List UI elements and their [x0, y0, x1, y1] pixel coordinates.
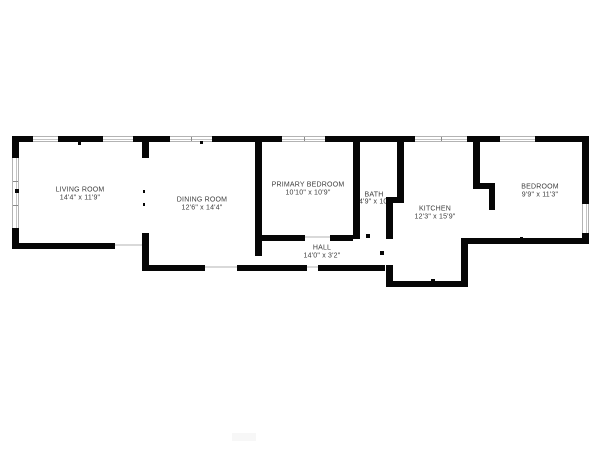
- door-stop-tick: [520, 237, 523, 240]
- room-name-hall: HALL: [313, 245, 331, 252]
- wall-segment: [397, 142, 404, 203]
- wall-segment: [237, 265, 307, 271]
- wall-segment: [318, 265, 385, 271]
- wall-segment: [489, 189, 495, 210]
- window-center-line: [33, 139, 58, 140]
- door-stop-tick: [143, 203, 145, 206]
- door-stop-tick: [366, 234, 370, 238]
- room-dimensions-living-room: 14'4" x 11'9": [60, 195, 100, 202]
- window-symbol: [33, 136, 58, 142]
- wall-segment: [582, 136, 589, 204]
- door-stop-tick: [15, 189, 19, 193]
- window-pane-divider: [441, 137, 442, 141]
- door-stop-tick: [143, 190, 145, 193]
- window-symbol: [170, 136, 212, 142]
- wall-segment: [467, 136, 500, 142]
- window-symbol: [12, 158, 19, 228]
- wall-segment: [330, 235, 353, 241]
- wall-segment: [461, 238, 468, 287]
- window-pane-divider: [13, 181, 18, 182]
- door-opening-threshold: [305, 236, 330, 238]
- wall-segment: [133, 136, 170, 142]
- room-dimensions-bedroom: 9'9" x 11'3": [522, 192, 558, 199]
- door-opening-threshold: [205, 266, 237, 268]
- room-dimensions-hall: 14'0" x 3'2": [304, 253, 341, 260]
- door-stop-tick: [538, 239, 541, 242]
- wall-segment: [255, 235, 305, 241]
- wall-segment: [473, 142, 480, 183]
- door-opening-threshold: [307, 266, 318, 268]
- wall-segment: [582, 233, 589, 244]
- door-stop-tick: [78, 141, 81, 145]
- floor-plan-screenshot: LIVING ROOM14'4" x 11'9"DINING ROOM12'6"…: [0, 0, 600, 449]
- wall-segment: [212, 136, 282, 142]
- door-opening-threshold: [115, 244, 143, 246]
- room-name-dining-room: DINING ROOM: [177, 197, 227, 204]
- door-stop-tick: [380, 251, 384, 255]
- wall-segment: [386, 281, 468, 287]
- room-name-primary-bedroom: PRIMARY BEDROOM: [272, 182, 345, 189]
- wall-segment: [142, 265, 205, 271]
- window-center-line: [586, 204, 587, 233]
- window-symbol: [415, 136, 467, 142]
- window-center-line: [16, 158, 17, 228]
- room-name-living-room: LIVING ROOM: [56, 187, 105, 194]
- wall-segment: [461, 238, 587, 244]
- watermark: [232, 433, 256, 441]
- floor-plan: LIVING ROOM14'4" x 11'9"DINING ROOM12'6"…: [0, 0, 600, 449]
- window-pane-divider: [304, 137, 305, 141]
- room-dimensions-kitchen: 12'3" x 15'9": [415, 214, 456, 221]
- wall-segment: [142, 142, 149, 158]
- wall-segment: [12, 243, 115, 249]
- window-center-line: [103, 139, 133, 140]
- window-center-line: [500, 139, 535, 140]
- wall-segment: [12, 136, 19, 158]
- window-symbol: [582, 204, 589, 233]
- window-pane-divider: [13, 205, 18, 206]
- room-dimensions-bath: 4'9" x 10': [359, 199, 389, 206]
- door-stop-tick: [200, 141, 203, 144]
- wall-segment: [386, 197, 393, 239]
- room-dimensions-primary-bedroom: 10'10" x 10'9": [285, 190, 330, 197]
- wall-segment: [535, 136, 589, 142]
- room-name-bedroom: BEDROOM: [521, 184, 559, 191]
- window-pane-divider: [191, 137, 192, 141]
- room-name-kitchen: KITCHEN: [419, 206, 451, 213]
- window-symbol: [103, 136, 133, 142]
- room-name-bath: BATH: [365, 192, 384, 199]
- room-dimensions-dining-room: 12'6" x 14'4": [182, 205, 223, 212]
- door-stop-tick: [431, 279, 435, 282]
- wall-segment: [353, 136, 360, 239]
- window-symbol: [282, 136, 325, 142]
- window-symbol: [500, 136, 535, 142]
